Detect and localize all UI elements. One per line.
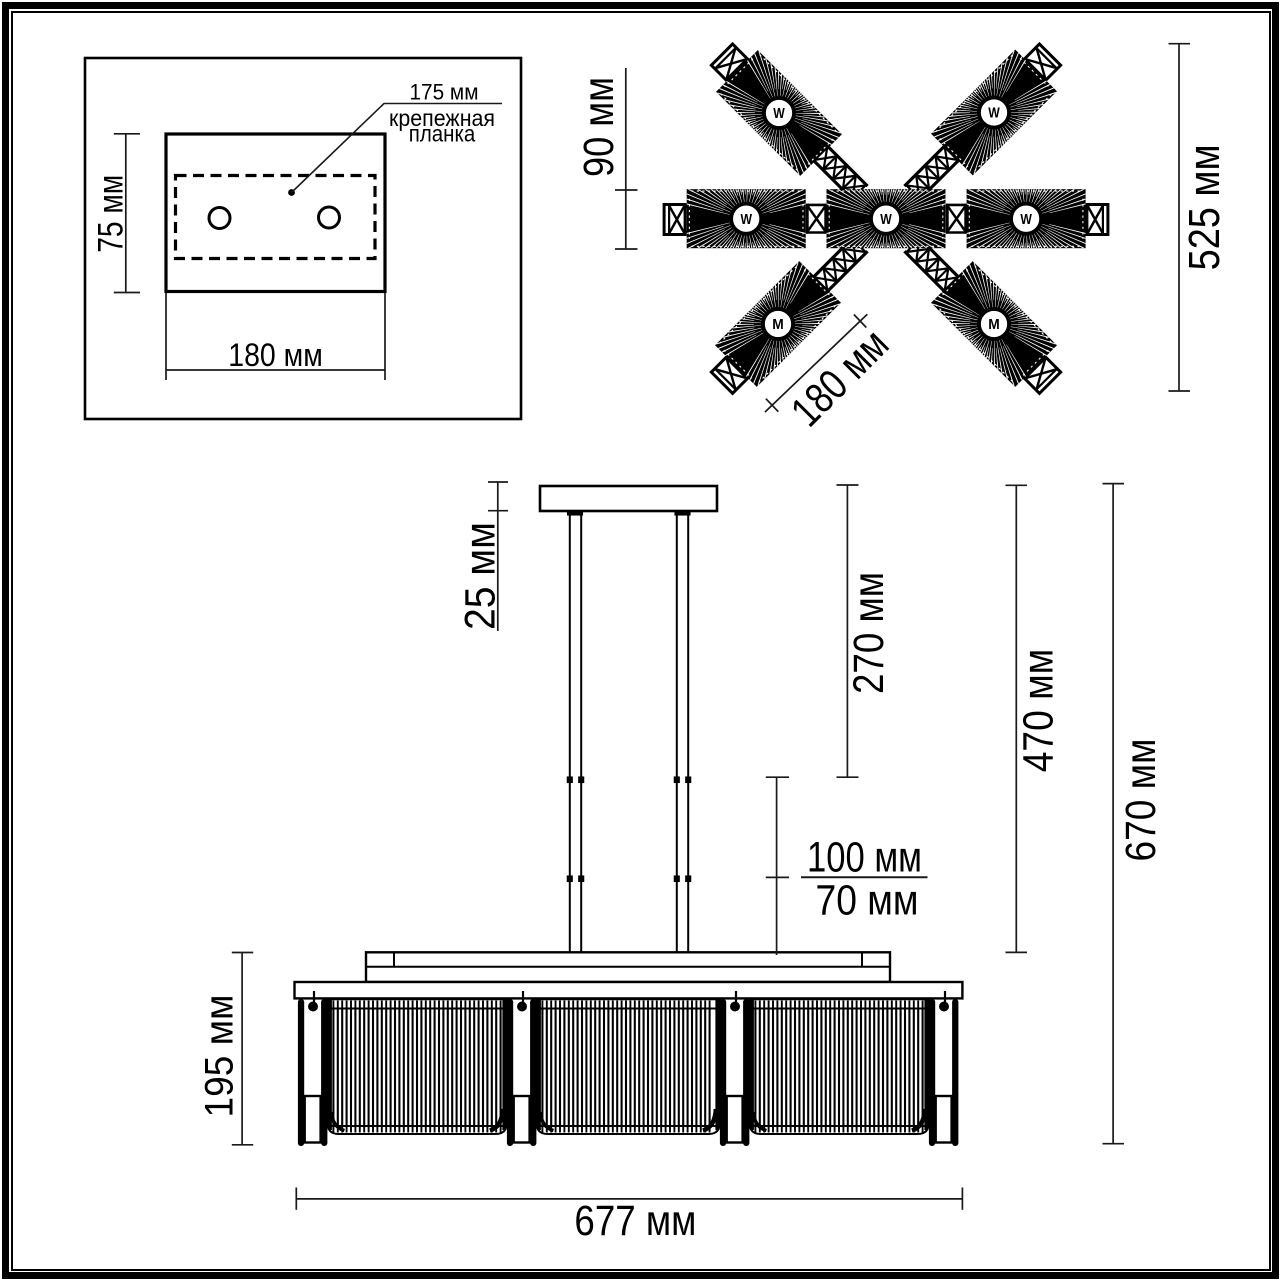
svg-text:670 мм: 670 мм [1117,739,1165,862]
svg-text:W: W [740,212,752,228]
svg-text:677 мм: 677 мм [574,1197,696,1245]
svg-text:M: M [988,317,1000,333]
svg-text:175 мм: 175 мм [410,80,479,105]
svg-text:W: W [988,106,1000,122]
svg-text:25 мм: 25 мм [457,522,505,630]
svg-text:180 мм: 180 мм [228,337,323,373]
svg-text:90 мм: 90 мм [575,77,623,177]
svg-text:470 мм: 470 мм [1015,649,1063,773]
svg-text:525 мм: 525 мм [1180,144,1229,270]
svg-text:W: W [1020,212,1032,228]
svg-text:W: W [773,106,785,122]
svg-text:70 мм: 70 мм [816,877,919,925]
svg-text:W: W [880,212,892,228]
svg-text:100 мм: 100 мм [807,834,922,882]
svg-text:75 мм: 75 мм [92,175,131,253]
svg-text:M: M [772,317,784,333]
svg-text:270 мм: 270 мм [845,572,893,694]
svg-text:планка: планка [409,120,476,146]
svg-text:195 мм: 195 мм [198,995,242,1118]
